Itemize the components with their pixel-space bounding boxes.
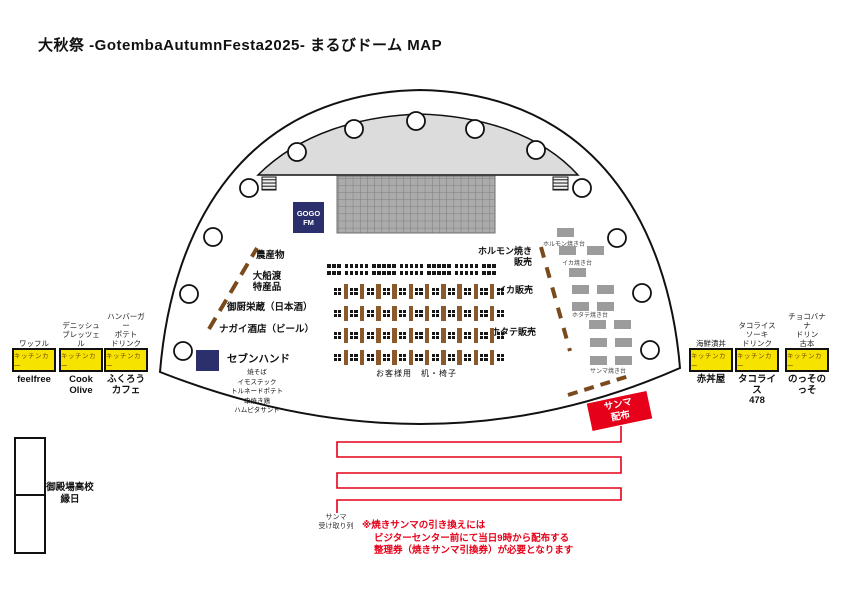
guest-table xyxy=(474,284,479,299)
table-row xyxy=(334,306,504,321)
grill-label-scallop: ホタテ焼き台 xyxy=(560,310,620,319)
grill-stand xyxy=(569,268,586,277)
chair-cluster xyxy=(497,288,504,295)
guest-table xyxy=(441,284,446,299)
chair xyxy=(345,271,349,275)
chair xyxy=(360,264,364,268)
chair xyxy=(365,271,369,275)
chair xyxy=(470,264,474,268)
chair xyxy=(332,264,336,268)
kitchen-car-box: キッチンカー xyxy=(104,348,148,372)
kitchen-car-box: キッチンカー xyxy=(12,348,56,372)
chair xyxy=(410,271,414,275)
guest-table xyxy=(425,306,430,321)
chair xyxy=(377,271,381,275)
stall-ofunato-specialty: 大船渡 特産品 xyxy=(241,271,293,293)
venue-map: 大秋祭 -GotembaAutumnFesta2025- まるびドーム MAP … xyxy=(0,0,842,595)
food-truck-cook-olive: デニッシュ ブレッツェル キッチンカー Cook Olive xyxy=(59,314,103,396)
guest-table xyxy=(344,306,349,321)
guest-table xyxy=(376,328,381,343)
chair-cluster xyxy=(367,288,374,295)
chair xyxy=(460,271,464,275)
grill-stand xyxy=(572,302,589,311)
guest-table xyxy=(474,328,479,343)
chair-cluster xyxy=(383,332,390,339)
guest-table xyxy=(409,284,414,299)
guest-table xyxy=(392,284,397,299)
school-label: 御殿場高校 縁日 xyxy=(43,482,97,505)
grill-stand xyxy=(589,320,606,329)
chair xyxy=(415,264,419,268)
truck-name: feelfree xyxy=(12,375,56,386)
grill-stand xyxy=(597,302,614,311)
chair xyxy=(337,264,341,268)
guest-table xyxy=(409,306,414,321)
chair-cluster xyxy=(350,332,357,339)
chair-cluster xyxy=(334,332,341,339)
stage-floor-grid xyxy=(337,176,495,233)
chair xyxy=(392,271,396,275)
table-row xyxy=(334,328,504,343)
gogo-fm-booth: GOGO FM xyxy=(293,202,324,233)
chair-cluster xyxy=(432,310,439,317)
guest-table xyxy=(457,284,462,299)
stall-sake: 御厨栄蔵（日本酒） xyxy=(227,302,313,313)
food-truck-tacorice478: タコライス ソーキ ドリンク キッチンカー タコライス 478 xyxy=(735,314,779,407)
grill-stand xyxy=(615,338,632,347)
chair xyxy=(415,271,419,275)
food-truck-nossonosso: チョコバナナ ドリン 古本 キッチンカー のっそのっそ xyxy=(785,314,829,396)
guest-table xyxy=(441,350,446,365)
guest-table xyxy=(457,328,462,343)
chair xyxy=(350,271,354,275)
chair xyxy=(360,271,364,275)
chair-cluster xyxy=(383,310,390,317)
chair-cluster xyxy=(399,310,406,317)
stall-beer: ナガイ酒店（ビール） xyxy=(219,324,314,335)
chair xyxy=(420,271,424,275)
guest-table xyxy=(425,284,430,299)
guest-table xyxy=(392,350,397,365)
truck-menu: ワッフル xyxy=(12,314,56,348)
chair xyxy=(455,271,459,275)
chair xyxy=(392,264,396,268)
chair-cluster xyxy=(334,310,341,317)
chair xyxy=(465,264,469,268)
chair xyxy=(410,264,414,268)
chair xyxy=(465,271,469,275)
chair xyxy=(355,264,359,268)
chair xyxy=(327,264,331,268)
sanma-queue-label: サンマ 受け取り列 xyxy=(306,513,366,531)
chair xyxy=(460,264,464,268)
guest-table xyxy=(490,284,495,299)
truck-name: Cook Olive xyxy=(59,375,103,396)
guest-table xyxy=(457,306,462,321)
chair-cluster xyxy=(448,310,455,317)
chair xyxy=(437,264,441,268)
sanma-notice: ※焼きサンマの引き換えには ビジターセンター前にて当日9時から配布する 整理券（… xyxy=(362,520,604,558)
guest-table xyxy=(425,350,430,365)
truck-menu: チョコバナナ ドリン 古本 xyxy=(785,314,829,348)
chair-cluster xyxy=(334,288,341,295)
chair-cluster xyxy=(367,310,374,317)
truck-menu: タコライス ソーキ ドリンク xyxy=(735,314,779,348)
guest-table xyxy=(344,350,349,365)
chair xyxy=(405,271,409,275)
chair xyxy=(382,264,386,268)
chair xyxy=(345,264,349,268)
food-truck-fukurou-cafe: ハンバーガー ポテト ドリンク キッチンカー ふくろう カフェ xyxy=(104,314,148,396)
table-row xyxy=(334,284,504,299)
stall-farm-products: 農産物 xyxy=(256,250,285,261)
chair-cluster xyxy=(497,310,504,317)
chair-cluster xyxy=(448,332,455,339)
kitchen-car-box: キッチンカー xyxy=(59,348,103,372)
chair-cluster xyxy=(432,288,439,295)
sanma-queue-line xyxy=(337,426,621,513)
food-truck-akadonya: 海鮮漬丼 キッチンカー 赤丼屋 xyxy=(689,314,733,386)
chair xyxy=(447,264,451,268)
guest-table xyxy=(490,328,495,343)
chair xyxy=(455,264,459,268)
chair xyxy=(492,264,496,268)
stage-stairs-right xyxy=(553,177,568,190)
chair xyxy=(487,271,491,275)
chair xyxy=(327,271,331,275)
chair xyxy=(372,271,376,275)
chair-cluster xyxy=(464,332,471,339)
kitchen-car-box: キッチンカー xyxy=(735,348,779,372)
chair-cluster xyxy=(350,288,357,295)
chair xyxy=(442,271,446,275)
school-stall-rect xyxy=(14,494,46,554)
guest-table xyxy=(425,328,430,343)
truck-name: ふくろう カフェ xyxy=(104,375,148,396)
guest-table xyxy=(490,306,495,321)
school-stall-rect xyxy=(14,437,46,496)
chair-cluster xyxy=(480,310,487,317)
chair-cluster xyxy=(399,288,406,295)
chair-rows xyxy=(327,264,496,275)
chair-cluster xyxy=(497,354,504,361)
truck-menu: デニッシュ ブレッツェル xyxy=(59,314,103,348)
guest-table xyxy=(441,328,446,343)
chair-cluster xyxy=(480,354,487,361)
guest-table xyxy=(360,306,365,321)
page-title: 大秋祭 -GotembaAutumnFesta2025- まるびドーム MAP xyxy=(38,34,442,55)
guest-table xyxy=(409,350,414,365)
chair-cluster xyxy=(350,310,357,317)
table-rows xyxy=(334,284,504,365)
chair xyxy=(492,271,496,275)
chair-cluster xyxy=(497,332,504,339)
seven-hand-menu: 焼そば イモステック トルネードポテト 串焼き鶏 ハムピタサンド xyxy=(213,368,301,416)
chair xyxy=(470,271,474,275)
food-truck-feelfree: ワッフル キッチンカー feelfree xyxy=(12,314,56,386)
chair xyxy=(377,264,381,268)
chair xyxy=(387,271,391,275)
guest-table xyxy=(360,350,365,365)
grill-stand xyxy=(597,285,614,294)
chair xyxy=(332,271,336,275)
kitchen-car-box: キッチンカー xyxy=(785,348,829,372)
chair xyxy=(372,264,376,268)
chair-cluster xyxy=(399,354,406,361)
chair xyxy=(427,264,431,268)
stage-stairs-left xyxy=(262,177,276,190)
chair xyxy=(427,271,431,275)
chair xyxy=(337,271,341,275)
chair-cluster xyxy=(415,310,422,317)
grill-stand xyxy=(559,246,576,255)
truck-name: タコライス 478 xyxy=(735,375,779,407)
guest-table xyxy=(376,350,381,365)
chair xyxy=(442,264,446,268)
chair xyxy=(447,271,451,275)
grill-stand xyxy=(590,338,607,347)
chair-cluster xyxy=(415,288,422,295)
chair-cluster xyxy=(415,332,422,339)
chair xyxy=(482,264,486,268)
seating-label: お客様用 机・椅子 xyxy=(376,368,457,379)
seven-hand-label: セブンハンド xyxy=(227,351,290,366)
guest-table xyxy=(344,328,349,343)
chair xyxy=(475,271,479,275)
truck-menu: ハンバーガー ポテト ドリンク xyxy=(104,314,148,348)
guest-table xyxy=(376,284,381,299)
guest-table xyxy=(360,328,365,343)
guest-table xyxy=(392,328,397,343)
truck-menu: 海鮮漬丼 xyxy=(689,314,733,348)
chair-cluster xyxy=(448,354,455,361)
chair xyxy=(400,264,404,268)
chair xyxy=(487,264,491,268)
guest-table xyxy=(392,306,397,321)
grill-stand xyxy=(615,356,632,365)
truck-name: のっそのっそ xyxy=(785,375,829,396)
truck-name: 赤丼屋 xyxy=(689,375,733,386)
grill-stand xyxy=(557,228,574,237)
chair xyxy=(432,264,436,268)
chair-row xyxy=(327,271,496,275)
chair xyxy=(350,264,354,268)
guest-table xyxy=(474,306,479,321)
guest-table xyxy=(409,328,414,343)
chair-cluster xyxy=(367,332,374,339)
chair-cluster xyxy=(350,354,357,361)
grill-label-squid: イカ焼き台 xyxy=(547,258,607,267)
chair-cluster xyxy=(464,310,471,317)
chair-cluster xyxy=(432,332,439,339)
chair xyxy=(475,264,479,268)
chair xyxy=(437,271,441,275)
grill-stand xyxy=(587,246,604,255)
chair-cluster xyxy=(448,288,455,295)
table-row xyxy=(334,350,504,365)
guest-table xyxy=(441,306,446,321)
chair-cluster xyxy=(480,288,487,295)
chair-cluster xyxy=(480,332,487,339)
chair xyxy=(482,271,486,275)
chair-cluster xyxy=(367,354,374,361)
chair xyxy=(382,271,386,275)
guest-table xyxy=(360,284,365,299)
grill-label-sanma: サンマ焼き台 xyxy=(578,366,638,375)
chair-cluster xyxy=(383,354,390,361)
chair-cluster xyxy=(399,332,406,339)
chair xyxy=(387,264,391,268)
chair xyxy=(400,271,404,275)
chair-cluster xyxy=(383,288,390,295)
guest-table xyxy=(474,350,479,365)
chair xyxy=(420,264,424,268)
grill-stand xyxy=(572,285,589,294)
grill-stand xyxy=(590,356,607,365)
chair-cluster xyxy=(334,354,341,361)
chair xyxy=(355,271,359,275)
chair-cluster xyxy=(464,288,471,295)
grill-stand xyxy=(614,320,631,329)
chair-cluster xyxy=(432,354,439,361)
chair xyxy=(365,264,369,268)
kitchen-car-box: キッチンカー xyxy=(689,348,733,372)
guest-table xyxy=(376,306,381,321)
guest-table xyxy=(490,350,495,365)
chair xyxy=(405,264,409,268)
guest-table xyxy=(457,350,462,365)
guest-table xyxy=(344,284,349,299)
chair xyxy=(432,271,436,275)
chair-cluster xyxy=(415,354,422,361)
chair-cluster xyxy=(464,354,471,361)
chair-row xyxy=(327,264,496,268)
